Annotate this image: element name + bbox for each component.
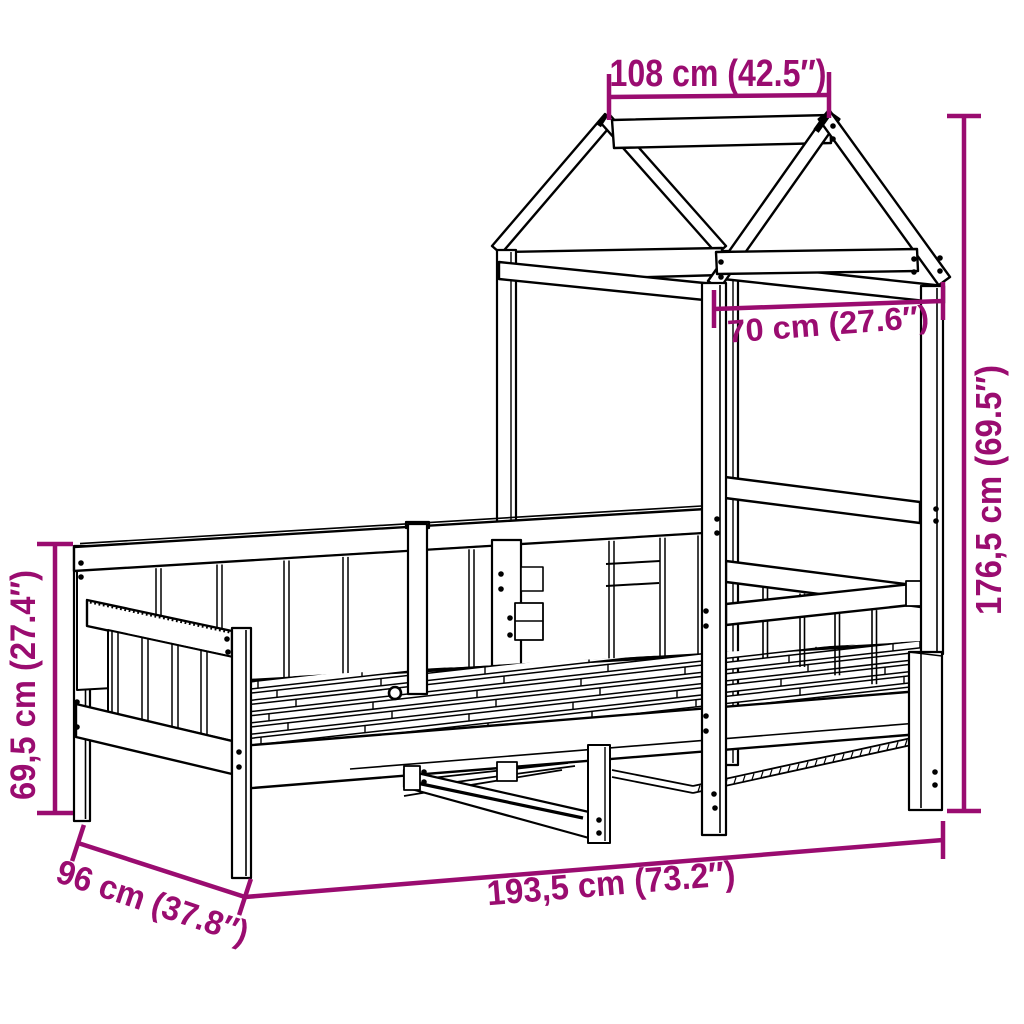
- svg-text:108 cm (42.5″): 108 cm (42.5″): [610, 53, 827, 95]
- svg-text:193,5 cm (73.2″): 193,5 cm (73.2″): [485, 854, 736, 913]
- svg-text:69,5 cm (27.4″): 69,5 cm (27.4″): [4, 570, 43, 800]
- svg-text:176,5 cm (69.5″): 176,5 cm (69.5″): [968, 365, 1009, 615]
